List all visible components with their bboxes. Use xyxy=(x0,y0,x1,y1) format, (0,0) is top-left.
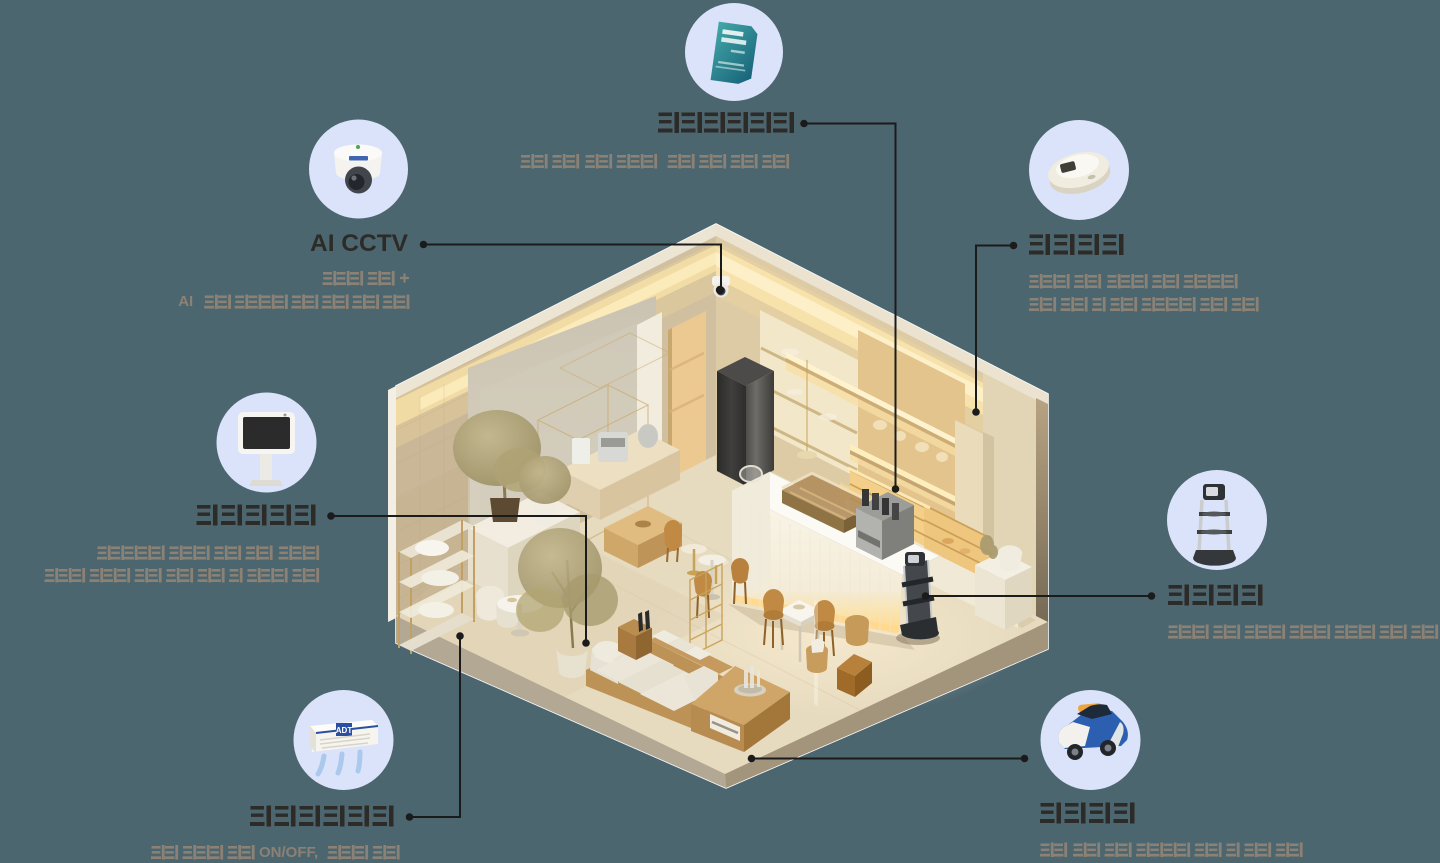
svg-text:AI: AI xyxy=(178,293,193,310)
svg-text:AI CCTV: AI CCTV xyxy=(310,230,409,257)
svg-text:ON/OFF,: ON/OFF, xyxy=(259,844,318,861)
svg-text:ADT: ADT xyxy=(336,726,353,735)
